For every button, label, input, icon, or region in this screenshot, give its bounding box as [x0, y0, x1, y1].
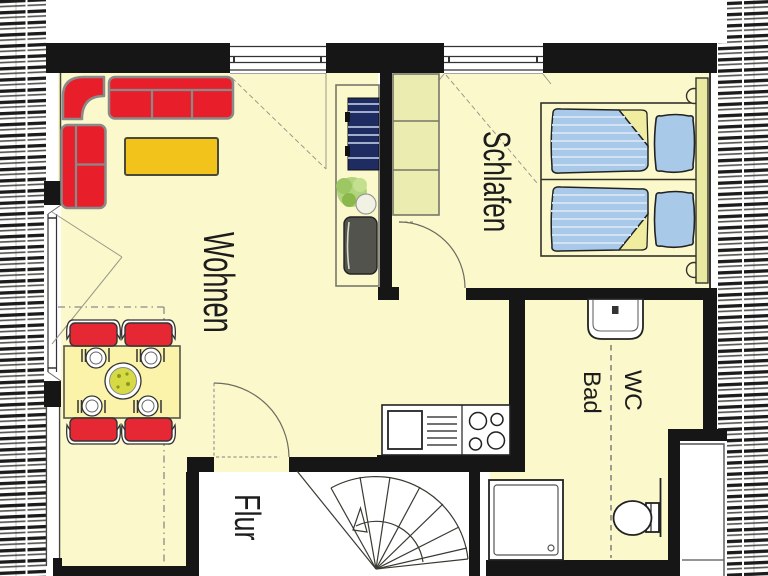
- svg-text:Bad: Bad: [578, 371, 605, 414]
- svg-text:Flur: Flur: [227, 494, 268, 541]
- svg-text:Schlafen: Schlafen: [476, 131, 518, 232]
- svg-text:WC: WC: [619, 370, 646, 411]
- svg-text:Wohnen: Wohnen: [194, 232, 243, 333]
